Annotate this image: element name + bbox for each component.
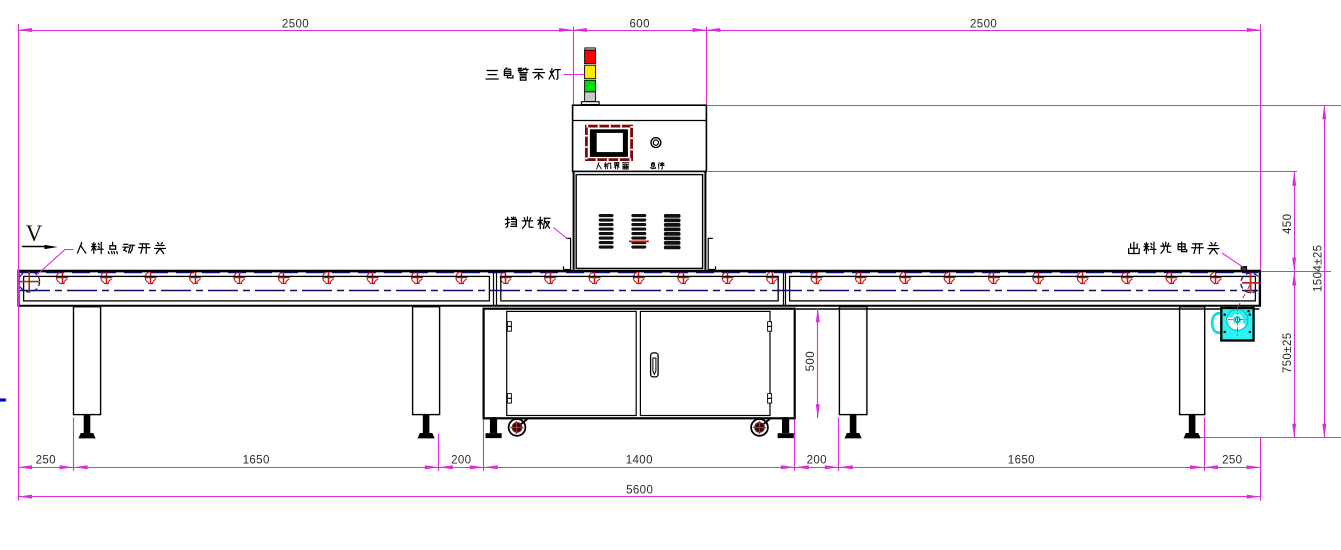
svg-text:2500: 2500 bbox=[970, 18, 997, 30]
svg-text:1650: 1650 bbox=[1008, 455, 1035, 467]
svg-text:450: 450 bbox=[1282, 214, 1294, 234]
svg-text:600: 600 bbox=[630, 18, 650, 30]
svg-text:1504±25: 1504±25 bbox=[1312, 245, 1324, 293]
svg-text:750±25: 750±25 bbox=[1282, 332, 1294, 373]
svg-text:2500: 2500 bbox=[282, 18, 309, 30]
svg-text:1400: 1400 bbox=[626, 455, 653, 467]
svg-text:V: V bbox=[26, 221, 43, 246]
svg-text:200: 200 bbox=[451, 455, 471, 467]
svg-text:250: 250 bbox=[1222, 455, 1242, 467]
svg-text:5600: 5600 bbox=[626, 485, 653, 497]
svg-text:250: 250 bbox=[36, 455, 56, 467]
svg-text:200: 200 bbox=[807, 455, 827, 467]
svg-text:500: 500 bbox=[805, 351, 817, 371]
svg-text:1650: 1650 bbox=[243, 455, 270, 467]
